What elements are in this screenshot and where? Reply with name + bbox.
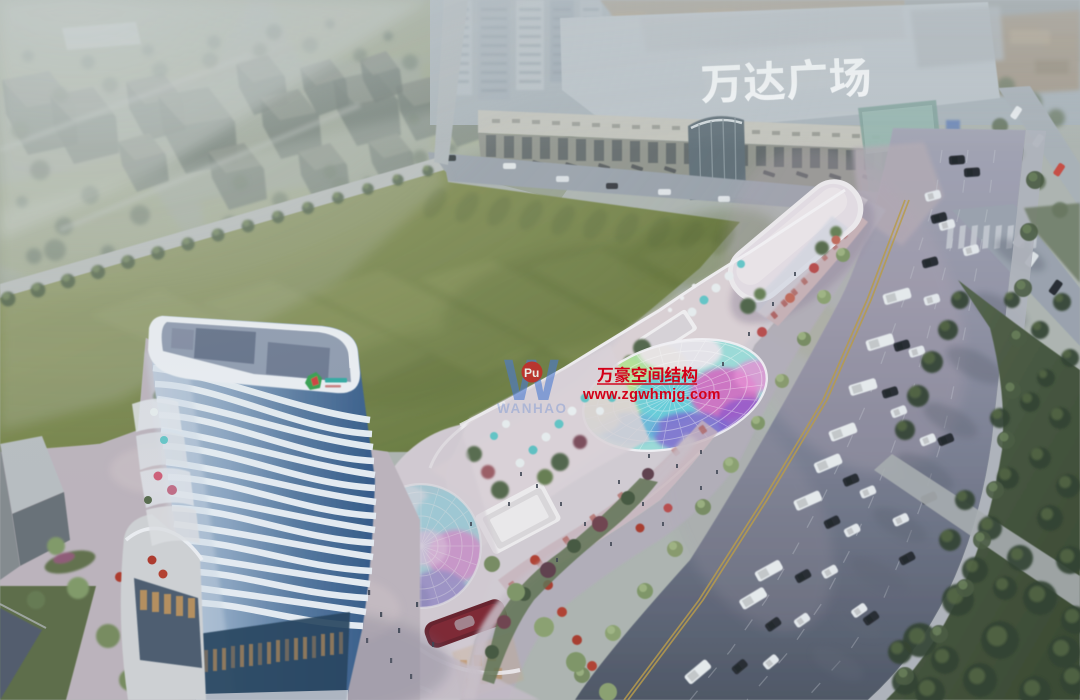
svg-text:www.zgwhmjg.com: www.zgwhmjg.com <box>582 387 721 403</box>
svg-text:WANHAO: WANHAO <box>497 401 568 416</box>
svg-text:Pu: Pu <box>524 366 539 380</box>
